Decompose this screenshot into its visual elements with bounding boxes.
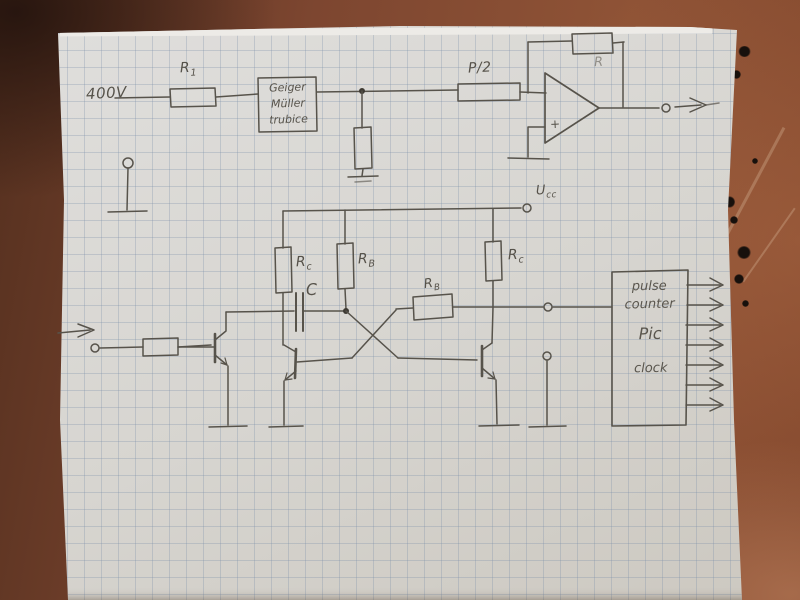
resistor-rc-right (485, 209, 502, 343)
input-terminal (91, 344, 99, 352)
capacitor-label: C (306, 280, 319, 300)
resistor-r1 (170, 88, 258, 107)
counter-output-lines (686, 278, 723, 411)
opamp-plus-sign: + (550, 117, 561, 132)
rc-left-label: Rc (296, 254, 313, 274)
opamp-output (599, 98, 719, 112)
resistor-rb-horizontal (413, 294, 543, 320)
coupling-capacitor (226, 293, 344, 331)
feedback-resistor-r (528, 33, 624, 107)
rb-vertical-label: RB (358, 251, 376, 271)
label-sub: c (306, 261, 312, 272)
label-main: R (508, 247, 519, 264)
label-sub: cc (546, 190, 557, 201)
input-transistor (178, 312, 247, 427)
label-main: R (180, 60, 191, 77)
hv-return-terminal (108, 158, 147, 212)
label-sub: B (368, 258, 376, 269)
ucc-terminal (523, 204, 531, 212)
ucc-label: Ucc (536, 182, 558, 201)
flipflop-output-terminal (544, 303, 552, 311)
label-main: R (296, 254, 307, 271)
output-terminal (662, 104, 670, 112)
hv-label: 400V (86, 83, 128, 103)
feedback-r-label: R (594, 55, 604, 70)
rb-horizontal-label: RB (423, 275, 441, 295)
r1-label: R1 (180, 60, 198, 80)
opamp-noninverting-ground (508, 127, 549, 159)
ucc-rail (283, 204, 531, 212)
label-sub: 1 (190, 67, 197, 78)
counter-line-4: clock (614, 360, 688, 376)
label-sub: B (433, 282, 441, 293)
output-ground-terminal (529, 352, 566, 427)
pulse-input (58, 324, 211, 356)
resistor-p-half (458, 83, 546, 101)
label-main: U (536, 183, 547, 199)
opamp-triangle (545, 73, 599, 143)
resistor-rc-left (275, 211, 292, 345)
counter-line-2: counter (612, 295, 686, 314)
label-sub: c (518, 254, 524, 265)
rc-right-label: Rc (508, 247, 525, 267)
flipflop-left-transistor (269, 345, 352, 427)
flipflop-right-transistor (398, 343, 519, 426)
photo-of-schematic: 400V R1 Geiger Müller trubice P/2 R + Uc… (0, 0, 800, 600)
cross-coupling-wires (346, 308, 413, 358)
pulse-counter-label: pulse counter Pic clock (612, 277, 688, 376)
counter-line-3: Pic (613, 323, 687, 343)
resistor-rb-vertical (337, 210, 354, 309)
p-half-label: P/2 (468, 59, 492, 76)
geiger-tube-label: Geiger Müller trubice (258, 79, 318, 129)
gm-line-3: trubice (259, 111, 318, 129)
label-main: R (358, 251, 369, 268)
counter-line-1: pulse (612, 277, 686, 296)
load-resistor-to-ground (348, 91, 378, 182)
